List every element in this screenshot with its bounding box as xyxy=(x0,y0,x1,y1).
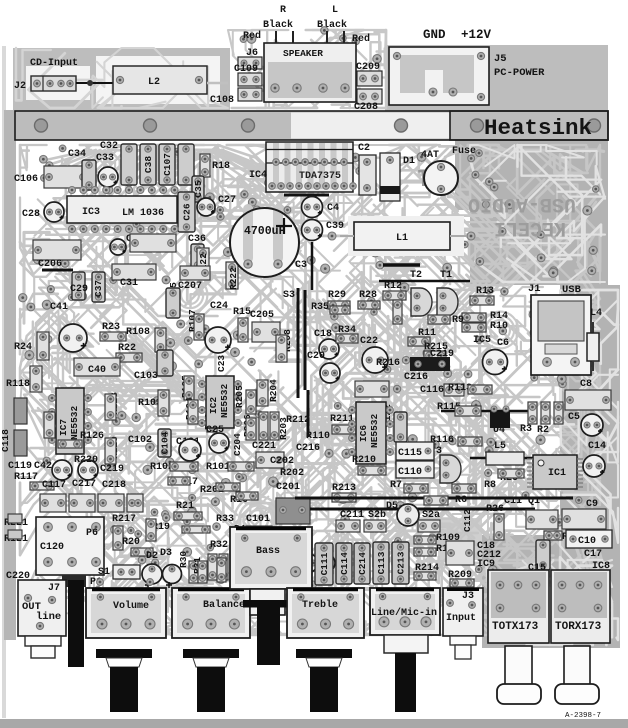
svg-text:C108: C108 xyxy=(210,95,234,106)
svg-text:S2b: S2b xyxy=(368,509,386,521)
svg-text:C110: C110 xyxy=(398,467,422,478)
svg-text:Q1: Q1 xyxy=(528,496,540,507)
svg-text:D3: D3 xyxy=(160,548,172,559)
svg-text:C220: C220 xyxy=(6,571,30,582)
svg-text:C28: C28 xyxy=(22,209,40,220)
svg-text:C22: C22 xyxy=(360,336,378,347)
svg-text:R9: R9 xyxy=(452,315,464,326)
svg-text:C204: C204 xyxy=(232,433,243,456)
svg-text:Bass: Bass xyxy=(256,546,280,557)
svg-text:Heatsink: Heatsink xyxy=(484,115,592,141)
svg-text:C101: C101 xyxy=(246,514,270,525)
svg-text:L5: L5 xyxy=(494,441,506,452)
svg-text:TORX173: TORX173 xyxy=(555,621,602,633)
svg-text:R204: R204 xyxy=(268,379,279,402)
svg-text:C10: C10 xyxy=(578,536,596,547)
svg-text:C207: C207 xyxy=(178,281,202,292)
svg-text:S2a: S2a xyxy=(422,510,440,521)
svg-text:R110: R110 xyxy=(306,431,330,442)
svg-text:R12: R12 xyxy=(384,281,402,292)
svg-text:C39: C39 xyxy=(326,221,344,232)
svg-text:Line/Mic-in: Line/Mic-in xyxy=(371,607,437,619)
svg-text:R26: R26 xyxy=(486,504,504,515)
svg-text:R23: R23 xyxy=(102,322,120,333)
svg-text:R20: R20 xyxy=(122,537,140,548)
svg-text:R21: R21 xyxy=(176,501,194,512)
svg-text:R222: R222 xyxy=(228,267,239,290)
svg-text:R24: R24 xyxy=(14,342,32,353)
svg-text:R220: R220 xyxy=(74,455,98,466)
svg-text:IC2: IC2 xyxy=(208,397,219,414)
svg-text:C32: C32 xyxy=(100,141,118,152)
svg-text:Black: Black xyxy=(263,19,293,31)
svg-text:R29: R29 xyxy=(328,290,346,301)
svg-text:R117: R117 xyxy=(14,472,38,483)
svg-text:Red: Red xyxy=(243,30,261,42)
svg-text:C218: C218 xyxy=(102,480,126,491)
svg-text:J5: J5 xyxy=(494,53,507,65)
svg-text:4AT: 4AT xyxy=(421,150,439,161)
svg-text:R126: R126 xyxy=(80,431,104,442)
svg-text:C42: C42 xyxy=(34,461,52,472)
svg-text:R2: R2 xyxy=(537,425,549,436)
svg-text:R8: R8 xyxy=(484,480,496,491)
svg-text:C26: C26 xyxy=(182,203,193,220)
svg-text:C20: C20 xyxy=(307,351,325,362)
svg-text:NE5532: NE5532 xyxy=(219,383,230,418)
svg-text:J7: J7 xyxy=(48,583,60,594)
svg-text:C37: C37 xyxy=(93,280,104,297)
svg-text:C117: C117 xyxy=(42,480,66,491)
svg-text:L1: L1 xyxy=(396,233,408,244)
svg-text:USB-AUDIO: USB-AUDIO xyxy=(468,192,576,215)
svg-text:C106: C106 xyxy=(14,174,38,185)
svg-text:C29: C29 xyxy=(70,284,88,295)
svg-text:C11: C11 xyxy=(504,496,522,507)
svg-text:NE5532: NE5532 xyxy=(69,405,80,440)
svg-text:C113: C113 xyxy=(376,551,387,574)
svg-text:P6: P6 xyxy=(86,528,98,539)
svg-text:C8: C8 xyxy=(580,379,592,390)
svg-text:Volume: Volume xyxy=(113,600,149,612)
svg-text:T2: T2 xyxy=(410,270,422,281)
svg-text:KECELI: KECELI xyxy=(494,216,566,239)
svg-text:R7: R7 xyxy=(390,480,402,491)
svg-text:C115: C115 xyxy=(398,448,422,459)
svg-text:Balance: Balance xyxy=(203,599,245,611)
svg-text:C201: C201 xyxy=(276,482,300,493)
svg-text:C41: C41 xyxy=(50,302,68,313)
svg-text:C111: C111 xyxy=(319,552,330,575)
svg-text:C107: C107 xyxy=(162,153,173,176)
svg-text:IC7: IC7 xyxy=(58,419,69,436)
svg-text:C33: C33 xyxy=(96,153,114,164)
svg-text:D5: D5 xyxy=(386,501,398,512)
svg-text:C3: C3 xyxy=(295,260,307,271)
svg-text:CD-Input: CD-Input xyxy=(30,58,78,69)
svg-text:Treble: Treble xyxy=(302,599,338,611)
svg-text:R13: R13 xyxy=(476,286,494,297)
svg-text:R108: R108 xyxy=(126,327,150,338)
svg-text:C116: C116 xyxy=(420,385,444,396)
svg-text:C31: C31 xyxy=(120,278,138,289)
svg-text:R35: R35 xyxy=(311,302,329,313)
svg-text:L: L xyxy=(332,5,338,16)
svg-text:C119: C119 xyxy=(8,461,32,472)
svg-text:C112: C112 xyxy=(462,509,473,532)
svg-text:A-2398-7: A-2398-7 xyxy=(565,712,601,720)
svg-text:TDA7375: TDA7375 xyxy=(299,171,341,182)
svg-text:R213: R213 xyxy=(332,483,356,494)
svg-text:4700uF: 4700uF xyxy=(244,225,286,238)
svg-text:R32: R32 xyxy=(210,540,228,551)
svg-text:C217: C217 xyxy=(72,479,96,490)
svg-text:C24: C24 xyxy=(210,301,228,312)
svg-text:+12V: +12V xyxy=(461,28,492,42)
svg-text:SPEAKER: SPEAKER xyxy=(283,48,323,59)
svg-text:D1: D1 xyxy=(403,156,415,167)
svg-text:R3: R3 xyxy=(520,424,532,435)
svg-text:C214: C214 xyxy=(357,552,368,575)
svg-text:R202: R202 xyxy=(280,468,304,479)
svg-text:L2: L2 xyxy=(148,77,160,88)
svg-text:IC6: IC6 xyxy=(358,425,369,442)
svg-text:R15: R15 xyxy=(233,307,251,318)
svg-text:PC-POWER: PC-POWER xyxy=(494,67,545,79)
svg-text:R30: R30 xyxy=(178,551,189,568)
svg-text:C104: C104 xyxy=(160,431,171,454)
svg-text:C40: C40 xyxy=(88,365,106,376)
svg-text:J2: J2 xyxy=(14,81,26,92)
svg-text:R28: R28 xyxy=(359,290,377,301)
svg-text:C205: C205 xyxy=(250,310,274,321)
svg-text:IC4: IC4 xyxy=(249,170,267,181)
svg-text:Input: Input xyxy=(446,613,476,624)
svg-text:R18: R18 xyxy=(212,161,230,172)
svg-text:C202: C202 xyxy=(270,456,294,467)
svg-text:C102: C102 xyxy=(128,435,152,446)
svg-text:C216: C216 xyxy=(404,372,428,383)
svg-text:C2: C2 xyxy=(358,143,370,154)
svg-text:R118: R118 xyxy=(6,379,30,390)
svg-text:C9: C9 xyxy=(586,499,598,510)
svg-text:IC5: IC5 xyxy=(473,335,491,346)
svg-text:R217: R217 xyxy=(112,514,136,525)
svg-text:R101: R101 xyxy=(206,462,230,473)
svg-text:C221: C221 xyxy=(252,441,276,452)
svg-text:C219: C219 xyxy=(100,464,124,475)
svg-text:J3: J3 xyxy=(462,591,474,602)
svg-text:TOTX173: TOTX173 xyxy=(492,621,539,633)
svg-text:GND: GND xyxy=(423,28,446,42)
svg-text:L4: L4 xyxy=(590,308,602,319)
svg-text:R: R xyxy=(280,5,286,16)
svg-text:IC3: IC3 xyxy=(82,207,100,218)
svg-text:C27: C27 xyxy=(218,195,236,206)
svg-text:C118: C118 xyxy=(0,429,11,452)
svg-text:J1: J1 xyxy=(528,283,541,295)
svg-text:C120: C120 xyxy=(40,542,64,553)
svg-text:R210: R210 xyxy=(352,455,376,466)
svg-text:Fuse: Fuse xyxy=(452,146,476,157)
svg-text:R216: R216 xyxy=(376,358,400,369)
svg-text:C206: C206 xyxy=(38,259,62,270)
svg-text:T1: T1 xyxy=(440,270,452,281)
svg-text:NE5532: NE5532 xyxy=(369,413,380,448)
svg-text:C211: C211 xyxy=(340,510,364,521)
svg-text:R205: R205 xyxy=(234,385,245,408)
svg-text:R10: R10 xyxy=(490,321,508,332)
svg-text:C38: C38 xyxy=(143,156,154,173)
svg-text:IC1: IC1 xyxy=(548,468,566,479)
svg-text:R22: R22 xyxy=(118,343,136,354)
svg-text:S3: S3 xyxy=(283,290,295,301)
svg-text:C216: C216 xyxy=(296,443,320,454)
svg-text:C4: C4 xyxy=(327,203,339,214)
svg-text:C213: C213 xyxy=(396,551,407,574)
svg-text:R33: R33 xyxy=(216,514,234,525)
svg-text:line: line xyxy=(36,611,61,623)
svg-text:R212: R212 xyxy=(286,415,310,426)
svg-text:D2: D2 xyxy=(146,551,158,562)
svg-text:LM 1036: LM 1036 xyxy=(122,208,164,219)
svg-text:C5: C5 xyxy=(568,412,580,423)
svg-text:IC9: IC9 xyxy=(477,559,495,570)
svg-text:C6: C6 xyxy=(497,338,509,349)
svg-text:C17: C17 xyxy=(584,549,602,560)
svg-text:Black: Black xyxy=(317,19,347,31)
svg-text:C34: C34 xyxy=(68,149,86,160)
svg-text:R6: R6 xyxy=(455,495,467,506)
svg-text:C14: C14 xyxy=(588,441,606,452)
svg-text:C114: C114 xyxy=(339,552,350,575)
svg-text:C23: C23 xyxy=(216,355,227,372)
svg-text:C103: C103 xyxy=(134,371,158,382)
